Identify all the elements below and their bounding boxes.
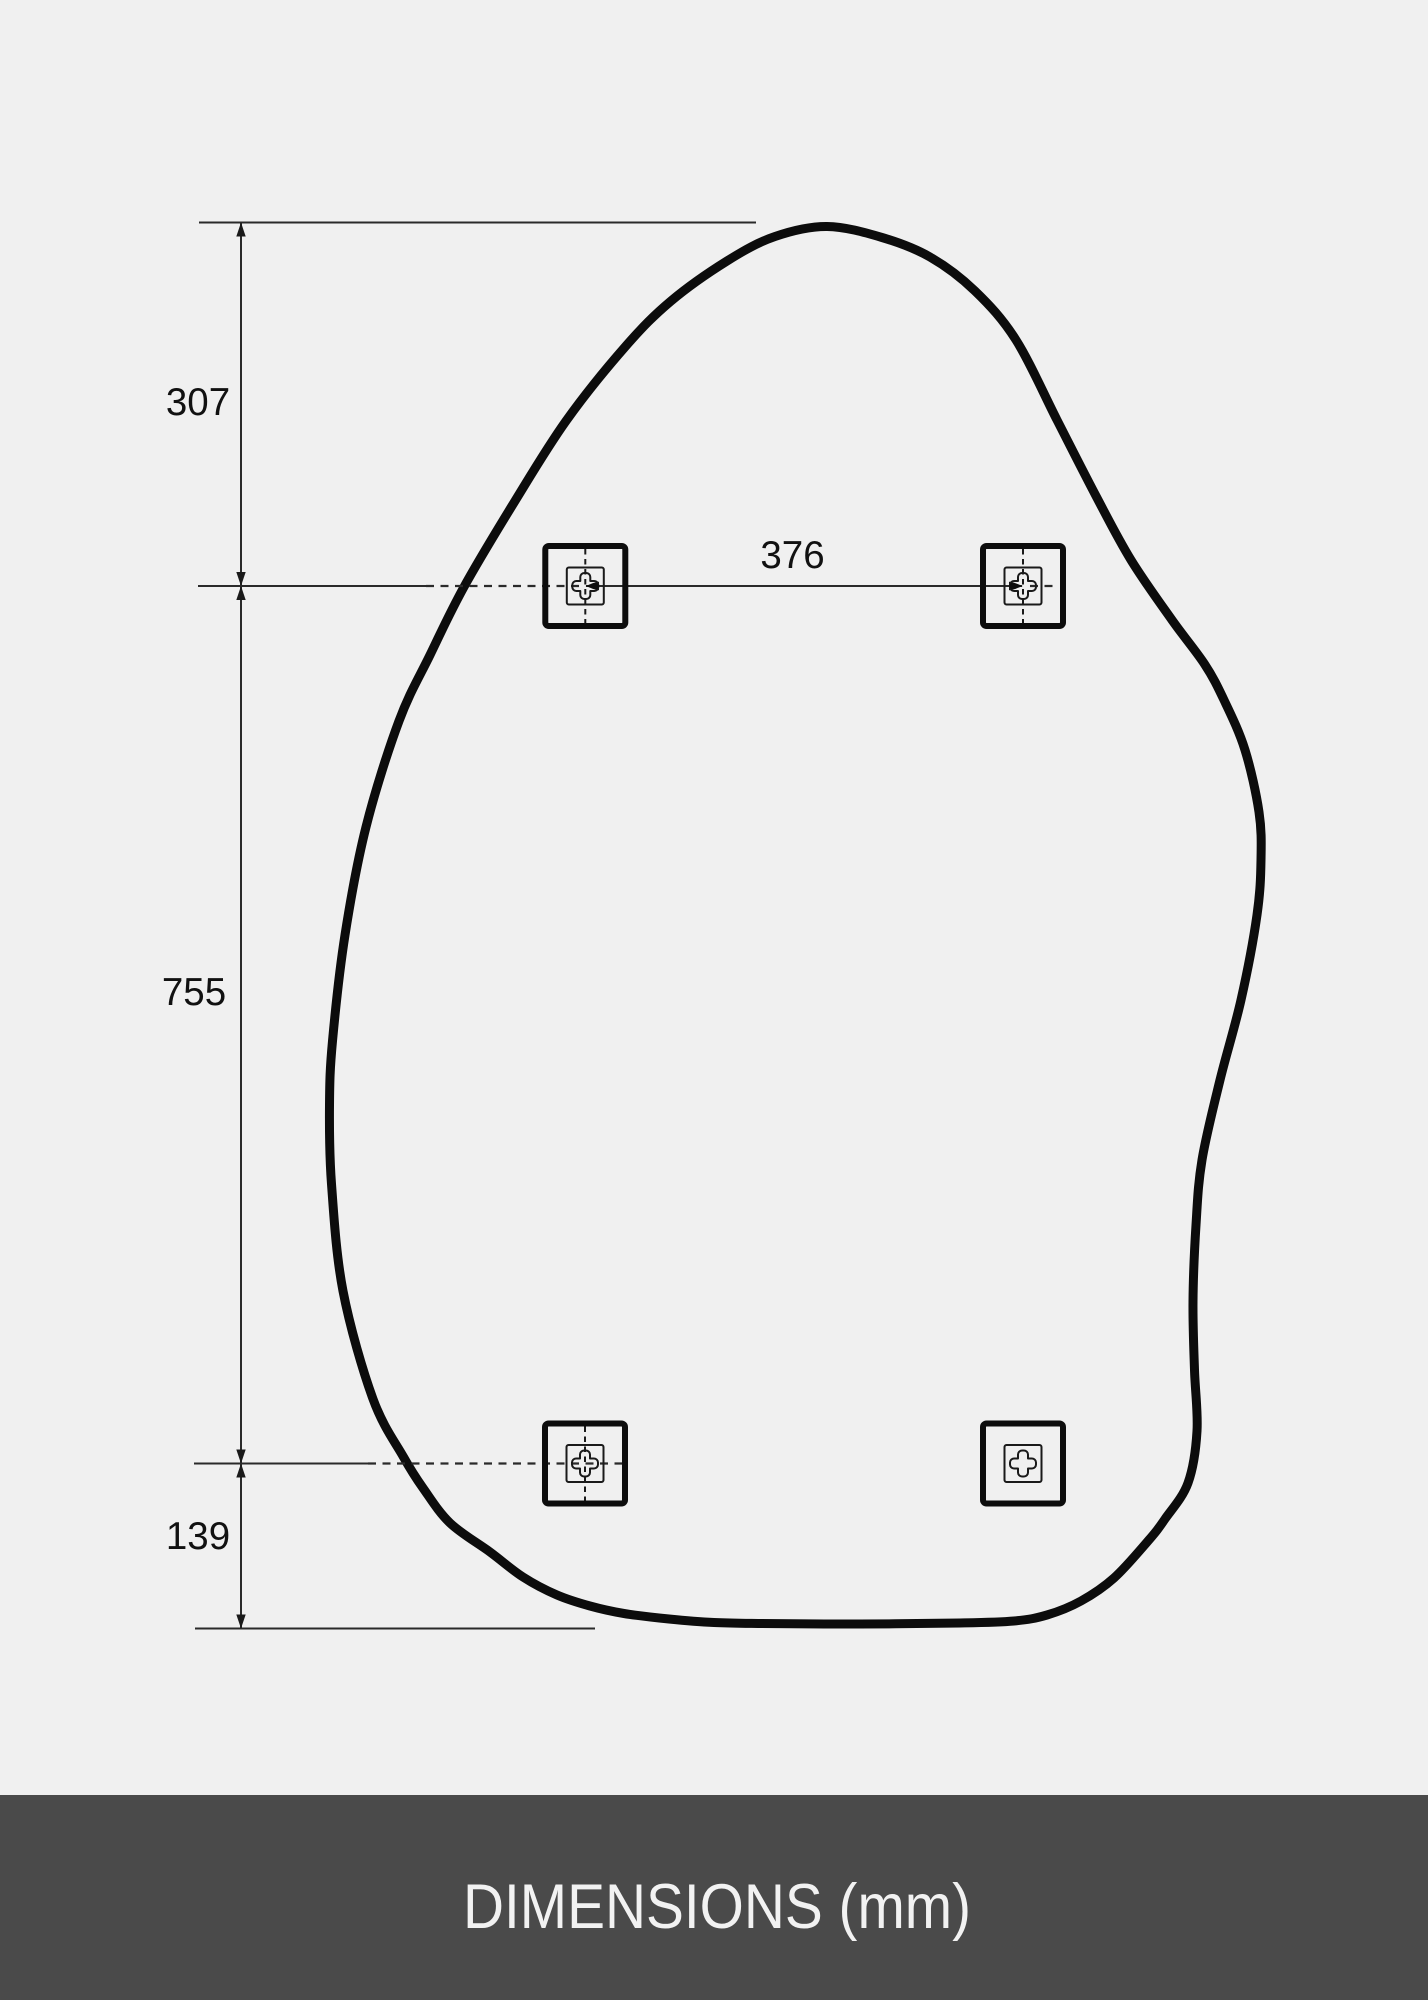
svg-text:755: 755 — [162, 971, 226, 1014]
svg-text:139: 139 — [166, 1515, 230, 1558]
svg-text:DIMENSIONS (mm): DIMENSIONS (mm) — [463, 1872, 971, 1942]
svg-text:307: 307 — [166, 381, 230, 424]
svg-text:376: 376 — [760, 534, 824, 577]
